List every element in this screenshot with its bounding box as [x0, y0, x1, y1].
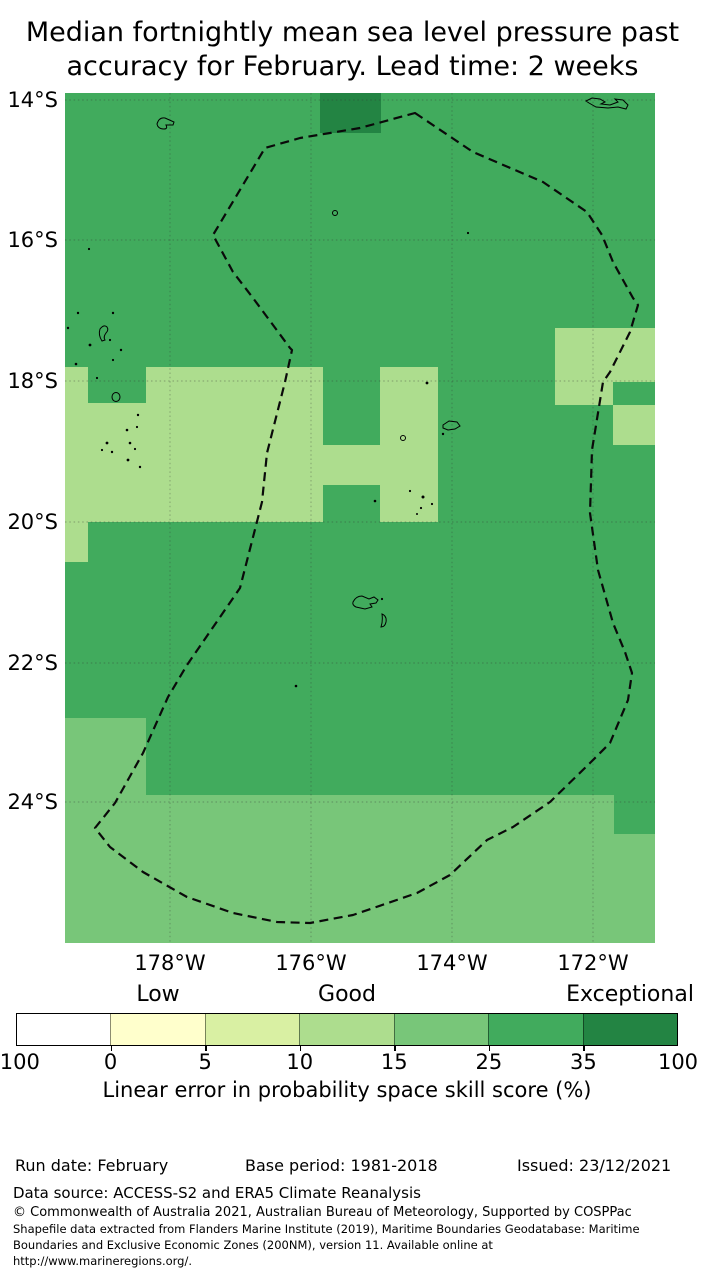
- lon-tick-label-174°W: 174°W: [407, 951, 497, 975]
- colorbar-tick-label--100: -100: [0, 1050, 40, 1074]
- colorbar-band-label-low: Low: [136, 982, 179, 1007]
- colorbar-tick-label-15: 15: [381, 1050, 408, 1074]
- lat-tick-label-24°S: 24°S: [2, 791, 58, 813]
- skill-cell-15-25: [614, 834, 655, 943]
- skill-cell-10-15: [613, 405, 655, 445]
- colorbar-segment-2: [205, 1014, 299, 1045]
- lon-tick-label-172°W: 172°W: [548, 951, 638, 975]
- data-source-text: Data source: ACCESS-S2 and ERA5 Climate …: [13, 1184, 421, 1202]
- colorbar-segment-0: [17, 1014, 110, 1045]
- colorbar-segment-4: [394, 1014, 488, 1045]
- colorbar-tick-label-100: 100: [658, 1050, 698, 1074]
- map-plot-area: [65, 93, 655, 943]
- shapefile-text-line3: http://www.marineregions.org/.: [13, 1254, 192, 1268]
- skill-cell-15-25: [146, 795, 614, 943]
- lat-tick-label-16°S: 16°S: [2, 229, 58, 251]
- figure-title-line1: Median fortnightly mean sea level pressu…: [26, 16, 679, 50]
- lat-tick-label-22°S: 22°S: [2, 652, 58, 674]
- figure-title: Median fortnightly mean sea level pressu…: [26, 16, 679, 84]
- colorbar: [16, 1013, 678, 1046]
- copyright-text: © Commonwealth of Australia 2021, Austra…: [13, 1205, 632, 1220]
- figure: Median fortnightly mean sea level pressu…: [0, 0, 705, 1275]
- skill-cell-10-15: [146, 367, 323, 522]
- colorbar-tick-label-10: 10: [286, 1050, 313, 1074]
- skill-cell-10-15: [380, 367, 438, 522]
- lat-tick-label-20°S: 20°S: [2, 511, 58, 533]
- skill-cell-10-15: [555, 328, 655, 382]
- colorbar-segment-3: [299, 1014, 393, 1045]
- colorbar-segment-5: [488, 1014, 582, 1045]
- colorbar-band-label-exceptional: Exceptional: [566, 982, 694, 1007]
- colorbar-tick-label-35: 35: [570, 1050, 597, 1074]
- shapefile-text-line1: Shapefile data extracted from Flanders M…: [13, 1222, 640, 1236]
- figure-title-line2: accuracy for February. Lead time: 2 week…: [26, 50, 679, 84]
- skill-cell-10-15: [555, 382, 613, 405]
- issued-text: Issued: 23/12/2021: [517, 1156, 671, 1175]
- colorbar-tick-label-0: 0: [104, 1050, 117, 1074]
- skill-cell-15-25: [65, 718, 146, 943]
- colorbar-segment-1: [110, 1014, 204, 1045]
- run-date-text: Run date: February: [15, 1156, 168, 1175]
- skill-cell-35-100: [320, 93, 381, 133]
- map-svg: [65, 93, 655, 943]
- skill-cell-10-15: [65, 367, 88, 562]
- skill-cell-10-15: [323, 445, 380, 485]
- lon-tick-label-176°W: 176°W: [266, 951, 356, 975]
- lon-tick-label-178°W: 178°W: [125, 951, 215, 975]
- lat-tick-label-18°S: 18°S: [2, 370, 58, 392]
- colorbar-tick-label-5: 5: [198, 1050, 211, 1074]
- shapefile-text-line2: Boundaries and Exclusive Economic Zones …: [13, 1238, 493, 1252]
- colorbar-tick-label-25: 25: [475, 1050, 502, 1074]
- colorbar-band-label-good: Good: [318, 982, 376, 1007]
- base-period-text: Base period: 1981-2018: [245, 1156, 438, 1175]
- colorbar-segment-6: [583, 1014, 677, 1045]
- skill-cell-10-15: [88, 403, 146, 522]
- lat-tick-label-14°S: 14°S: [2, 89, 58, 111]
- colorbar-caption: Linear error in probability space skill …: [103, 1078, 592, 1102]
